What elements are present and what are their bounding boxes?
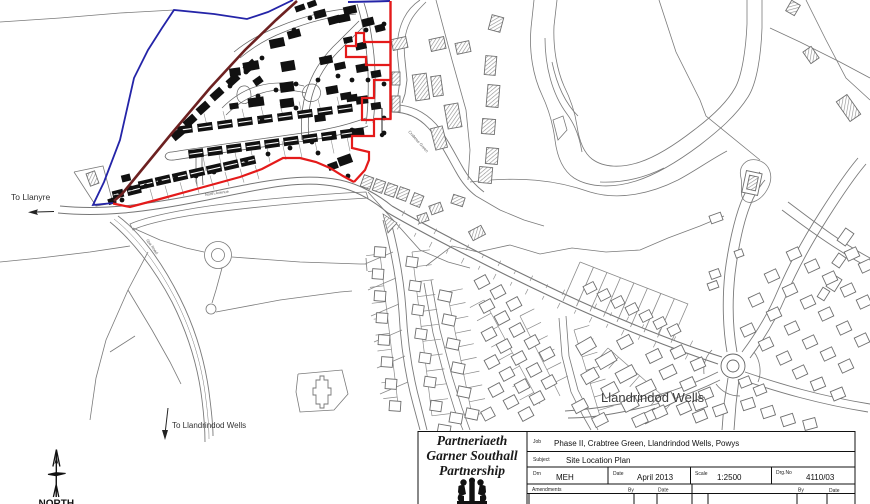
svg-text:NORTH: NORTH bbox=[39, 499, 75, 504]
svg-text:Drg.No: Drg.No bbox=[776, 470, 792, 476]
svg-text:Subject: Subject bbox=[533, 457, 550, 463]
svg-text:Partneriaeth: Partneriaeth bbox=[437, 433, 508, 448]
svg-text:To Llandrindod Wells: To Llandrindod Wells bbox=[172, 421, 246, 430]
svg-text:Drn: Drn bbox=[533, 471, 541, 477]
svg-text:Scale: Scale bbox=[695, 471, 708, 477]
svg-text:1:2500: 1:2500 bbox=[717, 473, 742, 482]
svg-text:Garner Southall: Garner Southall bbox=[426, 448, 517, 463]
svg-text:Date: Date bbox=[829, 488, 840, 494]
svg-text:Partnership: Partnership bbox=[439, 463, 505, 478]
svg-text:Site Location Plan: Site Location Plan bbox=[566, 456, 631, 465]
svg-text:Date: Date bbox=[613, 471, 624, 477]
svg-text:4110/03: 4110/03 bbox=[806, 473, 835, 482]
svg-text:Date: Date bbox=[658, 488, 669, 494]
svg-text:By: By bbox=[628, 488, 634, 494]
svg-text:April 2013: April 2013 bbox=[637, 473, 674, 482]
svg-text:Job: Job bbox=[533, 439, 541, 445]
svg-text:By: By bbox=[798, 488, 804, 494]
svg-text:Amendments: Amendments bbox=[532, 487, 562, 493]
svg-text:Llandrindod Wells: Llandrindod Wells bbox=[601, 390, 705, 405]
svg-text:To Llanyre: To Llanyre bbox=[11, 192, 50, 202]
svg-text:Phase II, Crabtree Green, Llan: Phase II, Crabtree Green, Llandrindod We… bbox=[554, 439, 739, 448]
svg-text:MEH: MEH bbox=[556, 473, 574, 482]
